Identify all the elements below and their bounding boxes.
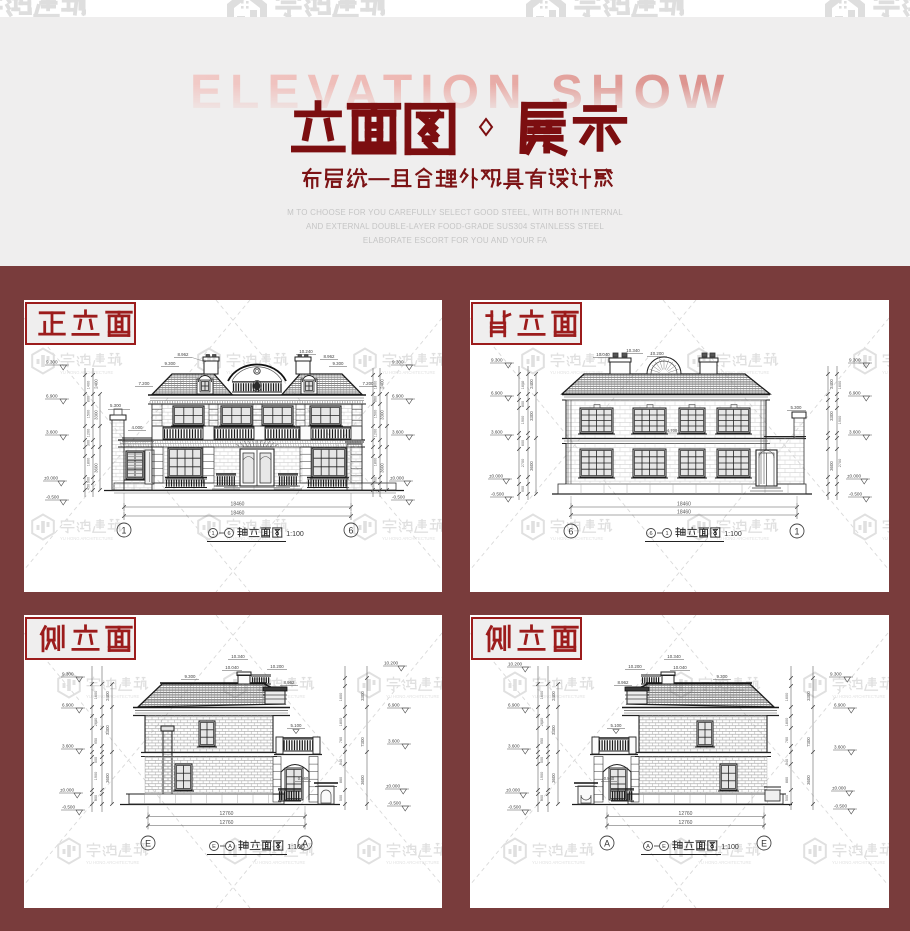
svg-text:860: 860 bbox=[785, 777, 789, 783]
svg-text:600: 600 bbox=[540, 795, 544, 801]
svg-text:18460: 18460 bbox=[677, 510, 691, 516]
svg-text:3300: 3300 bbox=[551, 725, 556, 735]
svg-text:1800: 1800 bbox=[87, 458, 91, 466]
svg-text:1: 1 bbox=[122, 525, 127, 535]
svg-text:6.900: 6.900 bbox=[834, 703, 846, 708]
svg-text:9.300: 9.300 bbox=[849, 358, 861, 363]
svg-text:940: 940 bbox=[785, 759, 789, 765]
svg-text:5.300: 5.300 bbox=[791, 405, 803, 410]
svg-text:6.900: 6.900 bbox=[849, 391, 861, 396]
svg-text:1:100: 1:100 bbox=[287, 844, 305, 851]
svg-text:800: 800 bbox=[87, 396, 91, 402]
svg-text:6: 6 bbox=[227, 531, 230, 537]
svg-text:600: 600 bbox=[521, 440, 525, 446]
svg-text:1: 1 bbox=[665, 531, 668, 537]
svg-text:8.962: 8.962 bbox=[284, 680, 296, 685]
svg-text:YU HONG ARCHITECTURE: YU HONG ARCHITECTURE bbox=[386, 694, 439, 699]
svg-text:9.300: 9.300 bbox=[333, 361, 345, 366]
svg-text:±0.000: ±0.000 bbox=[832, 786, 846, 791]
svg-text:18460: 18460 bbox=[677, 502, 691, 508]
svg-text:2400: 2400 bbox=[529, 379, 534, 389]
svg-text:YU HONG ARCHITECTURE: YU HONG ARCHITECTURE bbox=[882, 536, 889, 541]
svg-text:900: 900 bbox=[87, 477, 91, 483]
svg-text:E: E bbox=[212, 844, 216, 850]
svg-text:±0.000: ±0.000 bbox=[44, 476, 58, 481]
svg-text:7.200: 7.200 bbox=[363, 381, 375, 386]
svg-text:3300: 3300 bbox=[380, 410, 385, 420]
svg-text:YU HONG ARCHITECTURE: YU HONG ARCHITECTURE bbox=[832, 694, 885, 699]
svg-text:3.600: 3.600 bbox=[392, 430, 404, 435]
svg-text:1:100: 1:100 bbox=[724, 531, 742, 538]
svg-text:5.100: 5.100 bbox=[291, 723, 303, 728]
svg-text:6: 6 bbox=[349, 525, 354, 535]
svg-text:500: 500 bbox=[785, 795, 789, 801]
svg-text:6.900: 6.900 bbox=[46, 394, 58, 399]
svg-text:4.000: 4.000 bbox=[132, 425, 144, 430]
svg-text:±0.000: ±0.000 bbox=[390, 476, 404, 481]
svg-text:-0.500: -0.500 bbox=[849, 492, 862, 497]
svg-text:3600: 3600 bbox=[94, 463, 99, 473]
svg-text:3.600: 3.600 bbox=[834, 745, 846, 750]
svg-text:950: 950 bbox=[94, 738, 98, 744]
svg-text:YU HONG ARCHITECTURE: YU HONG ARCHITECTURE bbox=[382, 536, 435, 541]
svg-text:3600: 3600 bbox=[105, 773, 110, 783]
svg-text:E: E bbox=[662, 844, 666, 850]
svg-text:3300: 3300 bbox=[105, 725, 110, 735]
svg-text:YU HONG ARCHITECTURE: YU HONG ARCHITECTURE bbox=[698, 694, 751, 699]
svg-text:±0.000: ±0.000 bbox=[489, 474, 503, 479]
svg-text:1600: 1600 bbox=[785, 693, 789, 701]
svg-text:600: 600 bbox=[94, 795, 98, 801]
svg-text:1900: 1900 bbox=[521, 416, 525, 424]
svg-text:A: A bbox=[646, 844, 650, 850]
svg-text:3.600: 3.600 bbox=[508, 744, 520, 749]
svg-text:YU HONG ARCHITECTURE: YU HONG ARCHITECTURE bbox=[60, 370, 113, 375]
svg-text:2400: 2400 bbox=[105, 691, 110, 701]
svg-text:10.340: 10.340 bbox=[231, 654, 245, 659]
svg-text:1900: 1900 bbox=[540, 772, 544, 780]
svg-text:1500: 1500 bbox=[374, 410, 378, 418]
svg-text:4.700: 4.700 bbox=[667, 428, 678, 433]
svg-text:3300: 3300 bbox=[829, 411, 834, 421]
svg-text:10.240: 10.240 bbox=[299, 349, 313, 354]
svg-text:3600: 3600 bbox=[529, 461, 534, 471]
svg-text:3600: 3600 bbox=[380, 463, 385, 473]
svg-text:9.300: 9.300 bbox=[392, 360, 404, 365]
svg-text:2600: 2600 bbox=[94, 718, 98, 726]
svg-text:950: 950 bbox=[540, 738, 544, 744]
svg-text:2400: 2400 bbox=[380, 379, 385, 389]
svg-text:-0.500: -0.500 bbox=[834, 804, 847, 809]
svg-text:-0.500: -0.500 bbox=[491, 492, 504, 497]
svg-text:3300: 3300 bbox=[806, 691, 811, 701]
svg-text:9.300: 9.300 bbox=[62, 672, 74, 677]
svg-text:YU HONG ARCHITECTURE: YU HONG ARCHITECTURE bbox=[386, 860, 439, 865]
svg-text:1400: 1400 bbox=[374, 381, 378, 389]
svg-text:3600: 3600 bbox=[360, 775, 365, 785]
svg-text:YU HONG ARCHITECTURE: YU HONG ARCHITECTURE bbox=[698, 860, 751, 865]
svg-text:0.860: 0.860 bbox=[604, 776, 615, 781]
svg-text:8.962: 8.962 bbox=[618, 680, 630, 685]
svg-text:3.600: 3.600 bbox=[388, 739, 400, 744]
svg-text:±0.000: ±0.000 bbox=[386, 784, 400, 789]
svg-text:1:100: 1:100 bbox=[721, 844, 739, 851]
svg-text:0.860: 0.860 bbox=[298, 776, 309, 781]
svg-text:3300: 3300 bbox=[94, 410, 99, 420]
svg-text:3300: 3300 bbox=[529, 411, 534, 421]
svg-text:9.300: 9.300 bbox=[185, 674, 197, 679]
svg-text:9.300: 9.300 bbox=[165, 361, 177, 366]
svg-text:9.300: 9.300 bbox=[46, 360, 58, 365]
svg-text:18460: 18460 bbox=[231, 502, 245, 508]
svg-text:1800: 1800 bbox=[785, 718, 789, 726]
svg-text:1900: 1900 bbox=[838, 416, 842, 424]
svg-text:300: 300 bbox=[87, 440, 91, 446]
svg-text:3600: 3600 bbox=[806, 775, 811, 785]
svg-text:A: A bbox=[228, 844, 232, 850]
svg-text:-0.500: -0.500 bbox=[508, 805, 521, 810]
svg-text:YU HONG ARCHITECTURE: YU HONG ARCHITECTURE bbox=[832, 860, 885, 865]
svg-text:1: 1 bbox=[795, 526, 800, 536]
svg-text:10.040: 10.040 bbox=[673, 665, 687, 670]
svg-text:±0.000: ±0.000 bbox=[847, 474, 861, 479]
svg-text:500: 500 bbox=[94, 757, 98, 763]
svg-text:1800: 1800 bbox=[374, 458, 378, 466]
svg-text:-0.500: -0.500 bbox=[388, 801, 401, 806]
svg-text:1200: 1200 bbox=[374, 429, 378, 437]
svg-text:3600: 3600 bbox=[829, 461, 834, 471]
svg-text:450: 450 bbox=[87, 484, 91, 490]
svg-text:800: 800 bbox=[521, 401, 525, 407]
svg-text:1600: 1600 bbox=[521, 381, 525, 389]
svg-text:5.100: 5.100 bbox=[611, 723, 623, 728]
svg-text:7.200: 7.200 bbox=[139, 381, 151, 386]
svg-text:500: 500 bbox=[540, 757, 544, 763]
svg-text:YU HONG ARCHITECTURE: YU HONG ARCHITECTURE bbox=[252, 860, 305, 865]
svg-text:2400: 2400 bbox=[551, 691, 556, 701]
svg-text:1600: 1600 bbox=[540, 691, 544, 699]
svg-text:12760: 12760 bbox=[220, 811, 234, 817]
svg-text:1500: 1500 bbox=[87, 410, 91, 418]
svg-text:1900: 1900 bbox=[94, 772, 98, 780]
svg-text:±0.000: ±0.000 bbox=[506, 788, 520, 793]
svg-text:760: 760 bbox=[339, 737, 343, 743]
svg-text:6.900: 6.900 bbox=[392, 394, 404, 399]
svg-text:10.040: 10.040 bbox=[225, 665, 239, 670]
svg-text:9.300: 9.300 bbox=[491, 358, 503, 363]
svg-text:YU HONG ARCHITECTURE: YU HONG ARCHITECTURE bbox=[550, 536, 603, 541]
svg-text:-0.500: -0.500 bbox=[62, 805, 75, 810]
svg-text:3.600: 3.600 bbox=[46, 430, 58, 435]
svg-text:YU HONG ARCHITECTURE: YU HONG ARCHITECTURE bbox=[86, 860, 139, 865]
svg-text:-0.500: -0.500 bbox=[46, 495, 59, 500]
svg-text:1600: 1600 bbox=[339, 693, 343, 701]
svg-text:2700: 2700 bbox=[838, 459, 842, 467]
svg-text:YU HONG ARCHITECTURE: YU HONG ARCHITECTURE bbox=[882, 370, 889, 375]
svg-text:10.200: 10.200 bbox=[508, 662, 522, 667]
svg-text:800: 800 bbox=[374, 396, 378, 402]
svg-text:10.040: 10.040 bbox=[596, 352, 610, 357]
svg-text:12760: 12760 bbox=[679, 820, 693, 826]
svg-text:E: E bbox=[145, 838, 151, 848]
svg-text:2400: 2400 bbox=[94, 379, 99, 389]
svg-text:-0.500: -0.500 bbox=[392, 495, 405, 500]
svg-text:6.900: 6.900 bbox=[508, 703, 520, 708]
svg-text:1: 1 bbox=[211, 531, 214, 537]
svg-text:12760: 12760 bbox=[220, 820, 234, 826]
svg-text:2700: 2700 bbox=[521, 459, 525, 467]
svg-text:1400: 1400 bbox=[87, 381, 91, 389]
svg-text:10.200: 10.200 bbox=[270, 664, 284, 669]
svg-text:9.300: 9.300 bbox=[830, 672, 842, 677]
svg-text:6.900: 6.900 bbox=[62, 703, 74, 708]
svg-text:10.340: 10.340 bbox=[667, 654, 681, 659]
svg-text:6.900: 6.900 bbox=[388, 703, 400, 708]
svg-text:760: 760 bbox=[785, 737, 789, 743]
svg-text:YU HONG ARCHITECTURE: YU HONG ARCHITECTURE bbox=[382, 370, 435, 375]
svg-text:1800: 1800 bbox=[339, 718, 343, 726]
svg-text:2400: 2400 bbox=[829, 379, 834, 389]
svg-text:7300: 7300 bbox=[360, 737, 365, 747]
svg-text:6: 6 bbox=[649, 531, 652, 537]
svg-text:YU HONG ARCHITECTURE: YU HONG ARCHITECTURE bbox=[60, 536, 113, 541]
svg-text:1600: 1600 bbox=[94, 691, 98, 699]
svg-text:±0.000: ±0.000 bbox=[60, 788, 74, 793]
svg-text:860: 860 bbox=[339, 777, 343, 783]
svg-text:YU HONG ARCHITECTURE: YU HONG ARCHITECTURE bbox=[532, 860, 585, 865]
svg-text:3.600: 3.600 bbox=[849, 430, 861, 435]
svg-text:940: 940 bbox=[339, 759, 343, 765]
svg-text:12760: 12760 bbox=[679, 811, 693, 817]
svg-text:3600: 3600 bbox=[551, 773, 556, 783]
svg-text:900: 900 bbox=[521, 486, 525, 492]
svg-text:18460: 18460 bbox=[231, 511, 245, 517]
svg-text:10.200: 10.200 bbox=[384, 661, 398, 666]
svg-text:2600: 2600 bbox=[540, 718, 544, 726]
svg-text:1:100: 1:100 bbox=[286, 531, 304, 538]
svg-text:10.200: 10.200 bbox=[650, 351, 664, 356]
svg-text:8.962: 8.962 bbox=[324, 354, 336, 359]
svg-text:6.900: 6.900 bbox=[491, 391, 503, 396]
svg-text:500: 500 bbox=[339, 795, 343, 801]
svg-text:3300: 3300 bbox=[360, 691, 365, 701]
svg-text:900: 900 bbox=[374, 477, 378, 483]
svg-text:E: E bbox=[761, 838, 767, 848]
svg-text:1200: 1200 bbox=[87, 429, 91, 437]
svg-text:7300: 7300 bbox=[806, 737, 811, 747]
svg-text:9.300: 9.300 bbox=[717, 674, 729, 679]
svg-text:A: A bbox=[604, 838, 610, 848]
svg-text:1600: 1600 bbox=[838, 381, 842, 389]
svg-text:10.200: 10.200 bbox=[628, 664, 642, 669]
svg-text:8.962: 8.962 bbox=[178, 352, 190, 357]
svg-text:3.600: 3.600 bbox=[62, 744, 74, 749]
svg-text:10.340: 10.340 bbox=[626, 348, 640, 353]
svg-text:5.300: 5.300 bbox=[110, 403, 122, 408]
svg-text:3.600: 3.600 bbox=[491, 430, 503, 435]
svg-text:6: 6 bbox=[569, 526, 574, 536]
